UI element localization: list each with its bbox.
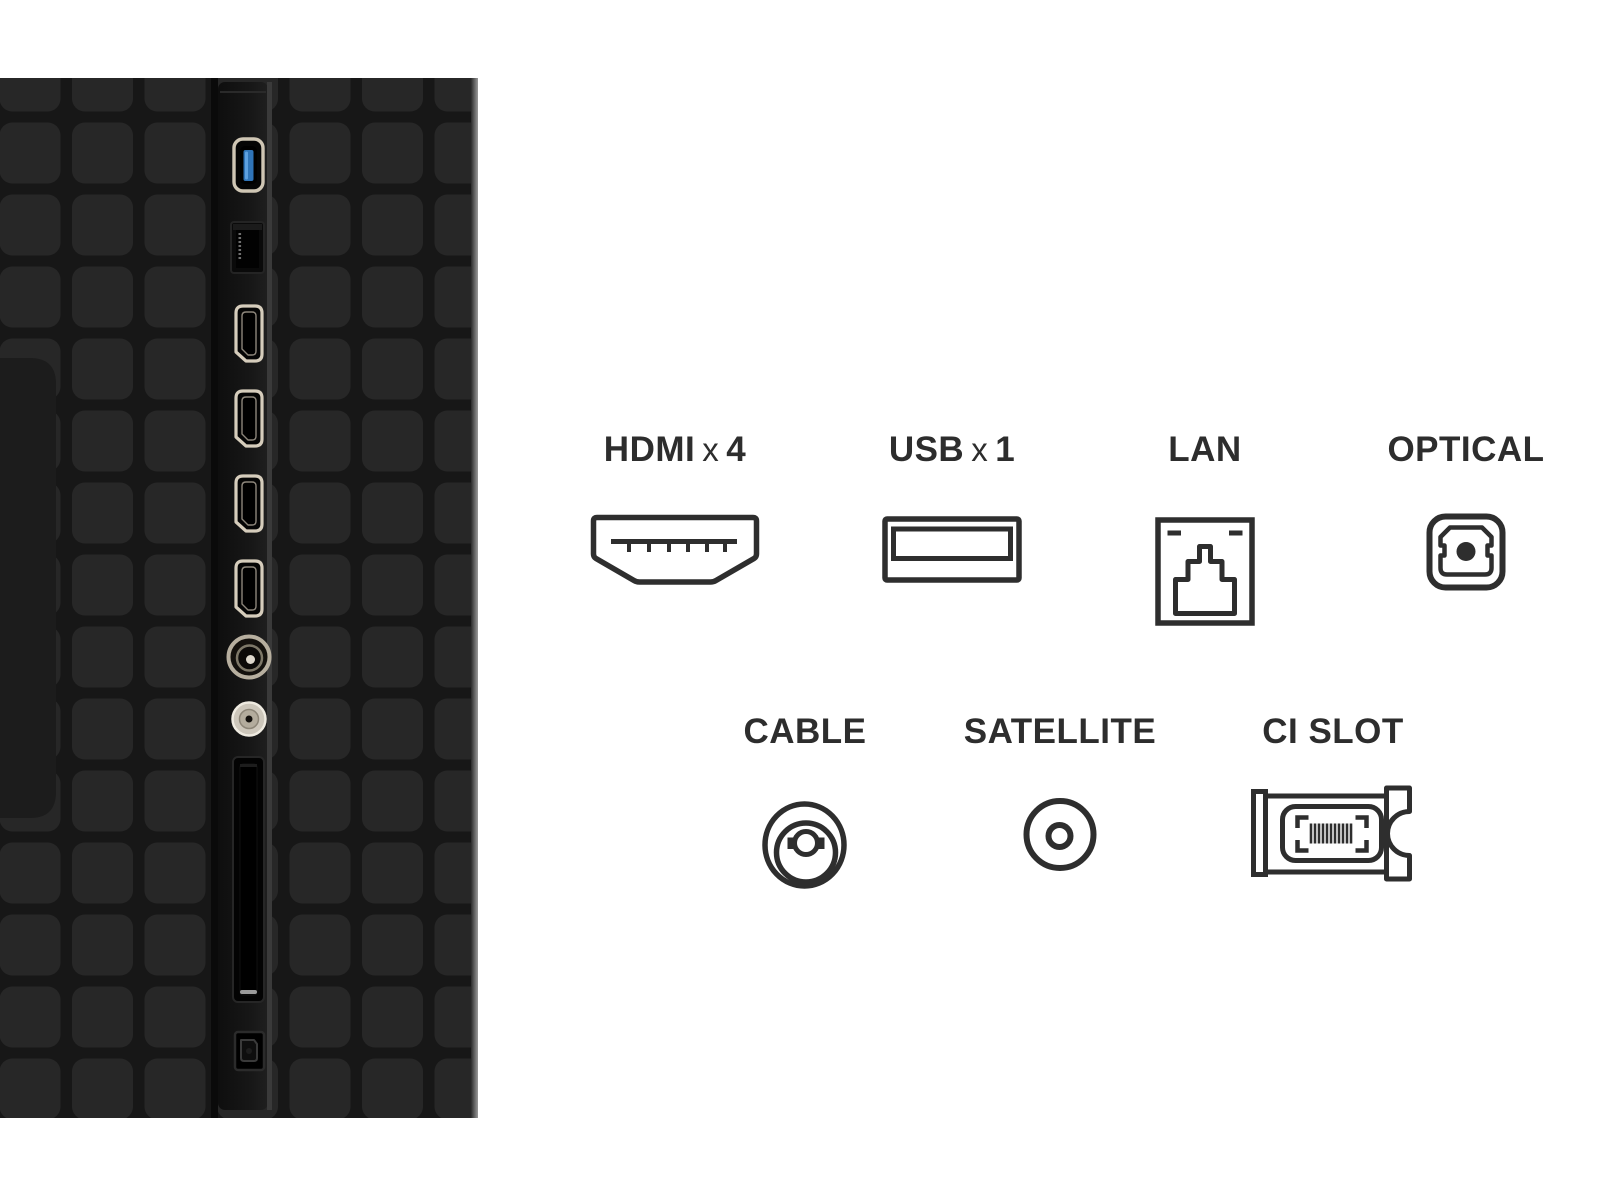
legend-item-hdmi: HDMIx4 [555,430,795,588]
usb-label-text: USB [889,430,964,469]
tv-back-panel-photo [0,78,478,1118]
panel-side-edge [471,78,478,1118]
ci-card-slot [233,757,264,1002]
cable-label-text: CABLE [743,712,866,751]
tv-back-panel-svg [0,78,478,1118]
hdmi-count: 4 [726,430,746,469]
hdmi-port-1 [236,306,262,361]
usb-3.0-port [234,139,263,191]
hdmi-port-4 [236,561,262,616]
legend-item-lan: LAN [1085,430,1325,627]
lan-label-text: LAN [1168,430,1241,469]
optical-audio-port [235,1032,264,1070]
lan-port [231,222,264,273]
legend-label-hdmi: HDMIx4 [555,430,795,470]
panel-recess [0,358,56,818]
legend-item-ci-slot: CI SLOT [1213,712,1453,885]
product-port-diagram: HDMIx4 USBx1 LAN [0,0,1600,1200]
legend-item-cable: CABLE [685,712,925,889]
hdmi-multiplier: x [695,431,726,468]
usb-connector-icon [882,516,1022,584]
optical-label-text: OPTICAL [1387,430,1544,469]
ci-module-icon [1249,785,1417,885]
satellite-port [233,703,266,736]
cable-coax-icon [762,801,848,889]
ci-slot-label-text: CI SLOT [1262,712,1404,751]
legend-item-satellite: SATELLITE [940,712,1180,873]
port-strip-seam [211,78,218,1118]
legend-item-usb: USBx1 [832,430,1072,584]
usb-multiplier: x [964,431,995,468]
hdmi-connector-icon [590,514,760,588]
hdmi-label-text: HDMI [604,430,695,469]
legend-label-ci-slot: CI SLOT [1213,712,1453,752]
legend-label-lan: LAN [1085,430,1325,470]
legend-label-usb: USBx1 [832,430,1072,470]
usb-count: 1 [995,430,1015,469]
lan-rj45-icon [1155,517,1255,627]
legend-label-cable: CABLE [685,712,925,752]
optical-toslink-icon [1426,513,1506,591]
cable-rf-port [229,637,270,678]
satellite-f-connector-icon [1022,797,1098,873]
hdmi-port-2 [236,391,262,446]
legend-label-optical: OPTICAL [1346,430,1586,470]
satellite-label-text: SATELLITE [964,712,1156,751]
legend-item-optical: OPTICAL [1346,430,1586,591]
legend-label-satellite: SATELLITE [940,712,1180,752]
hdmi-port-3 [236,476,262,531]
port-strip-edge-highlight [267,82,272,1110]
